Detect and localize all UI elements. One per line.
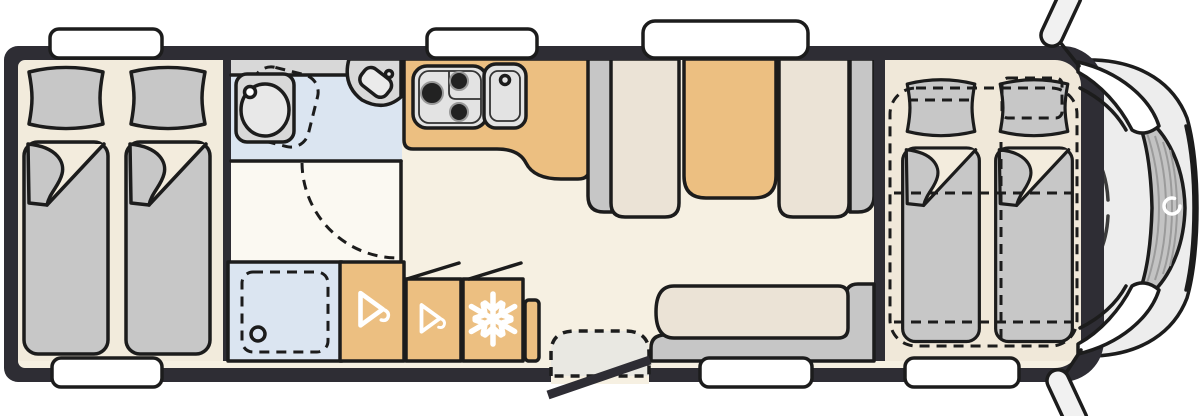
- dinette-backrest-left: [588, 59, 612, 212]
- kitchen-sink: [484, 64, 526, 128]
- entryway: [548, 331, 650, 395]
- dinette-table: [684, 59, 776, 198]
- bathroom: [231, 59, 403, 262]
- floorplan-stage: [0, 0, 1200, 416]
- window: [700, 358, 812, 387]
- sink-tap: [501, 76, 510, 85]
- bed-rear-left: [24, 68, 108, 355]
- burner: [421, 82, 443, 104]
- side-cabinet: [525, 300, 539, 361]
- window: [905, 358, 1019, 387]
- shower: [228, 262, 342, 361]
- bed-rear-right: [126, 68, 210, 355]
- bench-cushion: [656, 286, 848, 338]
- window: [50, 29, 162, 58]
- window: [52, 358, 162, 387]
- stove: [413, 66, 487, 128]
- dinette-seat-left: [611, 59, 679, 217]
- window: [643, 21, 808, 58]
- side-bench: [651, 284, 874, 361]
- burner: [450, 103, 468, 121]
- side-mirror-top: [1037, 0, 1084, 50]
- washbasin-tap: [386, 71, 393, 78]
- wardrobe-2: [406, 279, 461, 361]
- wardrobe-1: [340, 262, 404, 361]
- toilet: [236, 74, 294, 142]
- bed-front-left: [903, 80, 980, 342]
- dinette-backrest-right: [850, 59, 874, 212]
- window: [427, 29, 537, 58]
- burner: [450, 72, 468, 90]
- dinette: [588, 59, 874, 217]
- dinette-seat-right: [779, 59, 849, 217]
- floorplan-canvas: [0, 0, 1200, 416]
